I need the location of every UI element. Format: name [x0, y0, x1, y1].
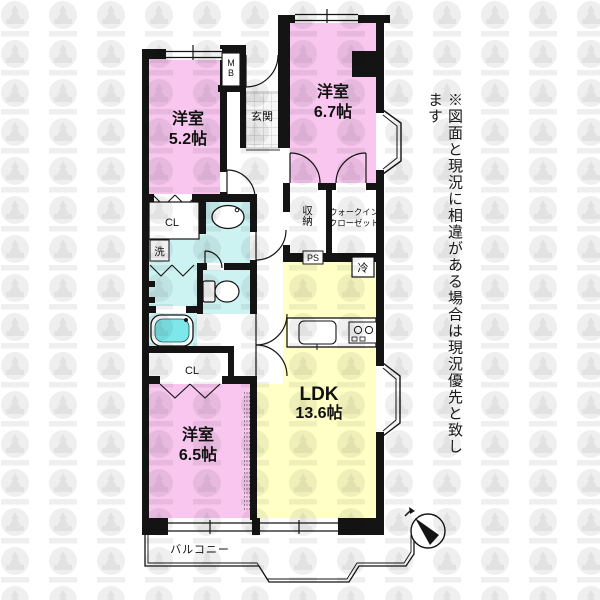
room-65-size: 6.5帖 [179, 445, 217, 464]
floorplan-drawing: MB PS 冷 CL 洗 CL 洋室 5.2帖 洋室 6.7帖 洋室 6.5帖 … [0, 0, 600, 600]
room-67-name: 洋室 [317, 82, 349, 101]
closet-upper-box: CL [149, 202, 206, 239]
room-52-name: 洋室 [172, 109, 204, 128]
ldk-name: LDK [299, 384, 338, 405]
bathtub-icon [151, 315, 193, 346]
closet-upper-label: CL [165, 217, 179, 229]
room-67-area [290, 23, 376, 183]
window-bottom-65 [168, 520, 252, 534]
floorplan-canvas: MB PS 冷 CL 洗 CL 洋室 5.2帖 洋室 6.7帖 洋室 6.5帖 … [0, 0, 600, 600]
ldk-size: 13.6帖 [295, 403, 342, 422]
kitchen-sink-icon [299, 321, 336, 344]
room-52-size: 5.2帖 [169, 129, 207, 148]
bay-window-67 [376, 104, 401, 179]
window-top-67 [295, 9, 358, 23]
wic-label-line2: クローゼット [329, 218, 379, 228]
closet-lower-label: CL [185, 365, 199, 377]
bay-window-ldk [376, 357, 400, 441]
kitchen-counter [287, 318, 377, 350]
laundry-label: 洗 [154, 246, 165, 258]
room-65-name: 洋室 [182, 425, 214, 444]
closet-lower-box: CL [185, 365, 199, 377]
entry-door-swing [246, 55, 278, 87]
door-room52 [227, 170, 255, 198]
balcony-label: バルコニー [170, 543, 230, 556]
washbasin-icon [212, 206, 244, 229]
pipe-space-label: PS [307, 253, 319, 263]
refrigerator-box: 冷 [352, 257, 374, 277]
storage-label: 収納 [301, 205, 313, 227]
entrance-label: 玄関 [251, 109, 273, 123]
toilet-icon [203, 281, 239, 302]
disclaimer-text: ※図面と現況に相違がある場合は現況優先と致します [424, 92, 464, 470]
stove-icon [349, 322, 377, 343]
window-bottom-ldk [260, 520, 338, 534]
wic-label-line1: ウォークイン [329, 207, 379, 217]
meter-box-label: MB [226, 58, 236, 78]
door-washroom [256, 230, 286, 260]
refrigerator-label: 冷 [358, 262, 369, 275]
pipe-space-box: PS [303, 251, 323, 264]
door-ldk-double [256, 314, 287, 376]
window-top-52 [166, 45, 222, 60]
fixture-stub [149, 281, 155, 287]
laundry-box: 洗 [150, 240, 169, 261]
fixture-stub [149, 297, 155, 303]
room-67-size: 6.7帖 [314, 102, 352, 121]
meter-box: MB [222, 53, 240, 86]
balcony-outline [145, 535, 414, 582]
